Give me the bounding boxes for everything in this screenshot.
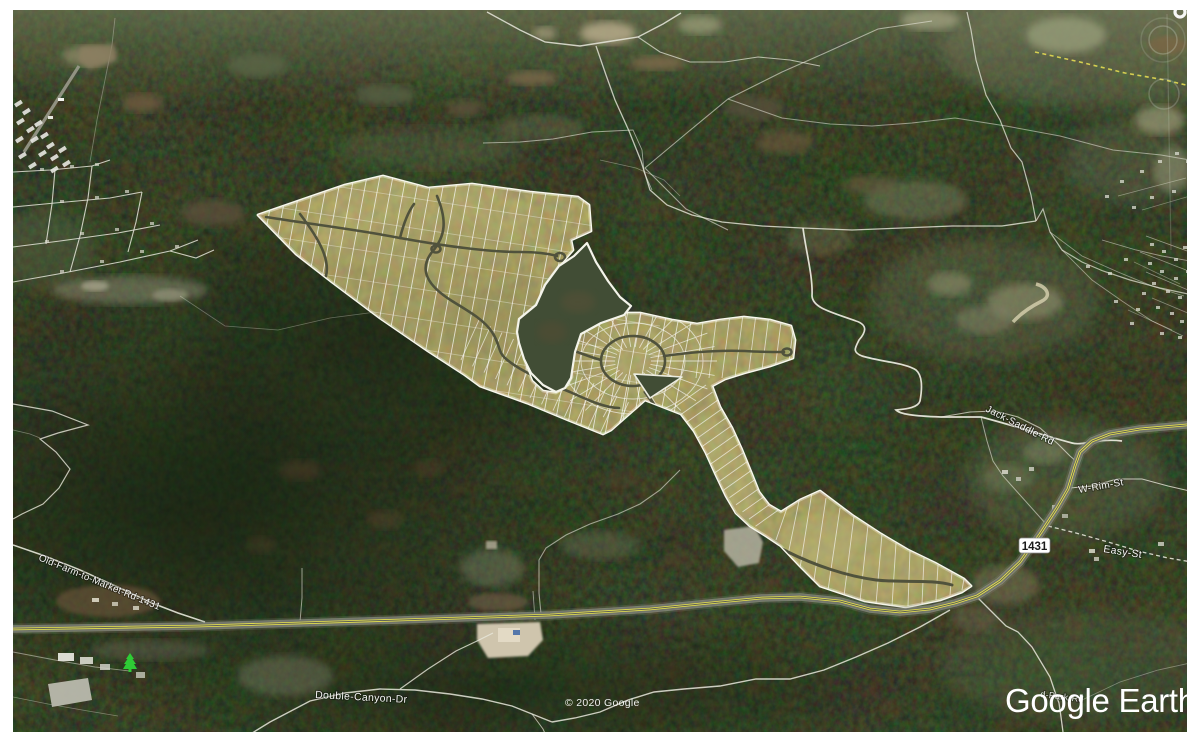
svg-text:Google Earth: Google Earth [1005, 682, 1196, 719]
svg-text:© 2020 Google: © 2020 Google [565, 697, 640, 709]
svg-text:1431: 1431 [1022, 541, 1048, 553]
